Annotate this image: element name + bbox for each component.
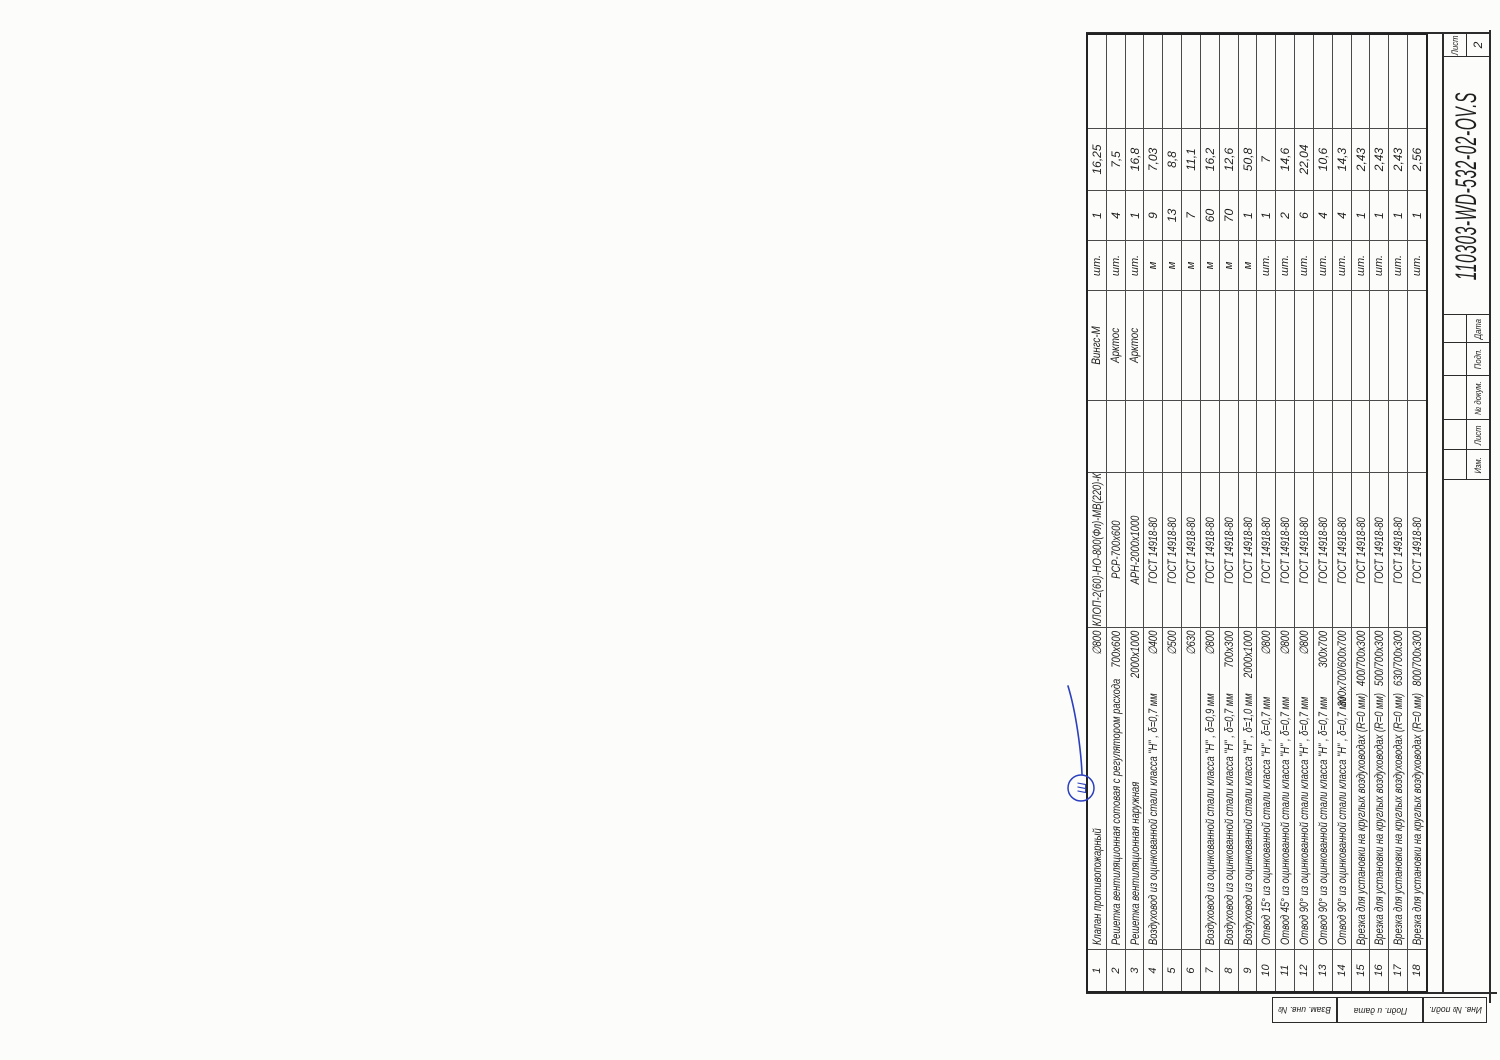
code-cell (1088, 400, 1106, 472)
manufacturer-cell: Вингс-М (1088, 290, 1106, 400)
note-cell (1314, 35, 1332, 128)
quantity: 1 (1372, 212, 1386, 219)
mass-cell: 2,43 (1370, 128, 1388, 190)
position-cell: 4 (1144, 949, 1162, 991)
quantity: 1 (1354, 212, 1368, 219)
quantity-cell: 6 (1295, 190, 1313, 240)
unit-cell: м (1163, 240, 1181, 290)
position-number: 17 (1392, 964, 1404, 976)
stamp-inv-podl: Инв. № подл. (1423, 997, 1487, 1023)
item-size: ∅800 (1297, 631, 1311, 655)
item-designation: ГОСТ 14918-80 (1410, 517, 1424, 583)
note-cell (1276, 35, 1294, 128)
stamp-podp-data: Подп. и дата (1337, 997, 1423, 1023)
quantity-cell: 1 (1257, 190, 1275, 240)
table-row: 6∅630ГОСТ 14918-80м711,1 (1182, 35, 1201, 991)
quantity-cell: 60 (1201, 190, 1219, 240)
item-name: Врезка для установки на круглых воздухов… (1391, 693, 1405, 945)
note-cell (1126, 35, 1144, 128)
quantity-cell: 1 (1389, 190, 1407, 240)
code-cell (1295, 400, 1313, 472)
spec-table: 1Клапан противопожарный∅800КЛОП-2(60)-НО… (1086, 33, 1428, 993)
mass: 22,04 (1297, 144, 1311, 174)
quantity-cell: 4 (1107, 190, 1125, 240)
unit: шт. (1110, 255, 1122, 276)
item-name: Воздуховод из оцинкованной стали класса … (1203, 693, 1217, 945)
code-cell (1144, 400, 1162, 472)
mass-cell: 2,43 (1389, 128, 1407, 190)
position-cell: 15 (1352, 949, 1370, 991)
item-designation: ГОСТ 14918-80 (1278, 517, 1292, 583)
position-cell: 14 (1333, 949, 1351, 991)
item-name-cell: Отвод 45° из оцинкованной стали класса "… (1276, 627, 1294, 949)
note-cell (1352, 35, 1370, 128)
quantity-cell: 1 (1239, 190, 1257, 240)
mass: 2,56 (1410, 148, 1424, 171)
item-name: Отвод 90° из оцинкованной стали класса "… (1335, 697, 1349, 945)
mass: 14,6 (1278, 148, 1292, 171)
designation-cell: ГОСТ 14918-80 (1276, 472, 1294, 627)
quantity: 1 (1259, 212, 1273, 219)
item-name-cell: Врезка для установки на круглых воздухов… (1389, 627, 1407, 949)
mass: 2,43 (1391, 148, 1405, 171)
unit-cell: шт. (1126, 240, 1144, 290)
table-row: 12Отвод 90° из оцинкованной стали класса… (1295, 35, 1314, 991)
manufacturer-cell (1389, 290, 1407, 400)
note-cell (1220, 35, 1238, 128)
item-name-cell: Врезка для установки на круглых воздухов… (1352, 627, 1370, 949)
code-cell (1201, 400, 1219, 472)
quantity-cell: 7 (1182, 190, 1200, 240)
mass: 12,6 (1222, 148, 1236, 171)
code-cell (1182, 400, 1200, 472)
item-name-cell: Отвод 15° из оцинкованной стали класса "… (1257, 627, 1275, 949)
position-number: 3 (1129, 967, 1141, 973)
position-cell: 12 (1295, 949, 1313, 991)
item-name: Решетка вентиляционная наружная (1128, 782, 1142, 945)
designation-cell: ГОСТ 14918-80 (1389, 472, 1407, 627)
unit: шт. (1336, 255, 1348, 276)
table-row: 2Решетка вентиляционная сотовая с регуля… (1107, 35, 1126, 991)
item-designation: АРН-2000х1000 (1128, 516, 1142, 585)
quantity: 9 (1146, 212, 1160, 219)
unit-cell: шт. (1352, 240, 1370, 290)
manufacturer-cell (1276, 290, 1294, 400)
manufacturer: Арктос (1110, 328, 1122, 363)
position-number: 1 (1091, 967, 1103, 973)
table-row: 5∅500ГОСТ 14918-80м138,8 (1163, 35, 1182, 991)
item-name: Воздуховод из оцинкованной стали класса … (1241, 693, 1255, 945)
table-row: 3Решетка вентиляционная наружная2000х100… (1126, 35, 1145, 991)
item-designation: ГОСТ 14918-80 (1146, 517, 1160, 583)
item-designation: РСР-700х600 (1109, 521, 1123, 579)
position-number: 15 (1355, 964, 1367, 976)
quantity-cell: 1 (1370, 190, 1388, 240)
manufacturer-cell (1352, 290, 1370, 400)
table-row: 16Врезка для установки на круглых воздух… (1370, 35, 1389, 991)
quantity: 4 (1109, 212, 1123, 219)
designation-cell: АРН-2000х1000 (1126, 472, 1144, 627)
unit: м (1147, 262, 1159, 270)
unit-cell: шт. (1276, 240, 1294, 290)
table-row: 18Врезка для установки на круглых воздух… (1408, 35, 1426, 991)
position-number: 6 (1185, 967, 1197, 973)
mass: 7 (1259, 156, 1273, 163)
designation-cell: ГОСТ 14918-80 (1333, 472, 1351, 627)
unit: шт. (1091, 255, 1103, 276)
position-cell: 7 (1201, 949, 1219, 991)
mass: 16,25 (1090, 144, 1104, 174)
specification-page: 1Клапан противопожарный∅800КЛОП-2(60)-НО… (0, 0, 1500, 1060)
mass: 16,2 (1203, 148, 1217, 171)
item-name-cell: Воздуховод из оцинкованной стали класса … (1201, 627, 1219, 949)
position-cell: 10 (1257, 949, 1275, 991)
unit-cell: м (1239, 240, 1257, 290)
code-cell (1126, 400, 1144, 472)
item-name-cell: ∅630 (1182, 627, 1200, 949)
position-number: 4 (1147, 967, 1159, 973)
manufacturer-cell (1220, 290, 1238, 400)
item-size: 500/700х300 (1372, 631, 1386, 687)
quantity: 1 (1090, 212, 1104, 219)
item-size: ∅400 (1146, 631, 1160, 655)
item-designation: ГОСТ 14918-80 (1241, 517, 1255, 583)
rev-label-izm: Изм. (1466, 450, 1490, 480)
mass-cell: 16,25 (1088, 128, 1106, 190)
manufacturer-cell (1201, 290, 1219, 400)
rev-label-list: Лист (1466, 420, 1490, 450)
item-name-cell: Отвод 90° из оцинкованной стали класса "… (1295, 627, 1313, 949)
item-name: Врезка для установки на круглых воздухов… (1354, 693, 1368, 945)
item-designation: ГОСТ 14918-80 (1372, 517, 1386, 583)
quantity-cell: 1 (1126, 190, 1144, 240)
quantity: 1 (1128, 212, 1142, 219)
quantity: 4 (1335, 212, 1349, 219)
note-cell (1295, 35, 1313, 128)
item-name-cell: Решетка вентиляционная наружная2000х1000 (1126, 627, 1144, 949)
designation-cell: ГОСТ 14918-80 (1352, 472, 1370, 627)
item-designation: ГОСТ 14918-80 (1391, 517, 1405, 583)
unit: м (1204, 262, 1216, 270)
quantity: 70 (1222, 209, 1236, 222)
mass: 10,6 (1316, 148, 1330, 171)
manufacturer-cell (1182, 290, 1200, 400)
mass-cell: 10,6 (1314, 128, 1332, 190)
rev-label-data: Дата (1466, 315, 1490, 343)
position-number: 12 (1298, 964, 1310, 976)
table-row: 9Воздуховод из оцинкованной стали класса… (1239, 35, 1258, 991)
manufacturer: Арктос (1129, 328, 1141, 363)
mass-cell: 22,04 (1295, 128, 1313, 190)
item-name: Решетка вентиляционная сотовая с регулят… (1109, 679, 1123, 945)
table-row: 10Отвод 15° из оцинкованной стали класса… (1257, 35, 1276, 991)
rev-label-podp: Подп. (1466, 343, 1490, 376)
position-cell: 18 (1408, 949, 1426, 991)
item-name-cell: Отвод 90° из оцинкованной стали класса "… (1333, 627, 1351, 949)
note-cell (1201, 35, 1219, 128)
item-size: ∅630 (1184, 631, 1198, 655)
unit-cell: м (1220, 240, 1238, 290)
svg-text:Ш: Ш (1075, 782, 1089, 794)
position-number: 9 (1242, 967, 1254, 973)
item-designation: ГОСТ 14918-80 (1316, 517, 1330, 583)
mass-cell: 14,3 (1333, 128, 1351, 190)
manufacturer-cell (1239, 290, 1257, 400)
sheet-label-cell: Лист (1443, 33, 1466, 57)
mass-cell: 2,56 (1408, 128, 1426, 190)
unit-cell: шт. (1370, 240, 1388, 290)
designation-cell: РСР-700х600 (1107, 472, 1125, 627)
quantity: 1 (1410, 212, 1424, 219)
unit-cell: м (1144, 240, 1162, 290)
position-number: 8 (1223, 967, 1235, 973)
position-number: 18 (1411, 964, 1423, 976)
code-cell (1107, 400, 1125, 472)
designation-cell: ГОСТ 14918-80 (1408, 472, 1426, 627)
mass: 7,5 (1109, 151, 1123, 168)
sheet-label: Лист (1450, 35, 1460, 55)
manufacturer-cell: Арктос (1126, 290, 1144, 400)
mass: 11,1 (1184, 148, 1198, 170)
item-name-cell: Решетка вентиляционная сотовая с регулят… (1107, 627, 1125, 949)
code-cell (1220, 400, 1238, 472)
manufacturer: Вингс-М (1091, 326, 1103, 364)
item-designation: ГОСТ 14918-80 (1335, 517, 1349, 583)
unit-cell: шт. (1295, 240, 1313, 290)
position-number: 7 (1204, 967, 1216, 973)
item-name: Врезка для установки на круглых воздухов… (1372, 693, 1386, 945)
position-number: 2 (1110, 967, 1122, 973)
table-row: 13Отвод 90° из оцинкованной стали класса… (1314, 35, 1333, 991)
code-cell (1314, 400, 1332, 472)
quantity-cell: 4 (1333, 190, 1351, 240)
handwritten-pen-mark: Ш (1060, 672, 1100, 812)
unit-cell: шт. (1333, 240, 1351, 290)
item-designation: КЛОП-2(60)-НО-800(Фл)-МВ(220)-К (1090, 473, 1104, 626)
item-size: 400/700х300 (1354, 631, 1368, 687)
manufacturer-cell (1370, 290, 1388, 400)
code-cell (1257, 400, 1275, 472)
position-number: 10 (1260, 964, 1272, 976)
quantity: 1 (1391, 212, 1405, 219)
note-cell (1408, 35, 1426, 128)
table-row: 7Воздуховод из оцинкованной стали класса… (1201, 35, 1220, 991)
quantity-cell: 13 (1163, 190, 1181, 240)
item-name: Отвод 90° из оцинкованной стали класса "… (1316, 697, 1330, 945)
unit: шт. (1298, 255, 1310, 276)
mass-cell: 7 (1257, 128, 1275, 190)
unit: шт. (1373, 255, 1385, 276)
note-cell (1088, 35, 1106, 128)
mass: 16,8 (1128, 148, 1142, 171)
item-size: 300х700 (1316, 631, 1330, 668)
position-cell: 5 (1163, 949, 1181, 991)
unit: м (1185, 262, 1197, 270)
manufacturer-cell (1314, 290, 1332, 400)
mass: 50,8 (1241, 148, 1255, 171)
item-name: Отвод 90° из оцинкованной стали класса "… (1297, 697, 1311, 945)
note-cell (1370, 35, 1388, 128)
unit: шт. (1279, 255, 1291, 276)
mass-cell: 2,43 (1352, 128, 1370, 190)
mass-cell: 16,8 (1126, 128, 1144, 190)
code-cell (1370, 400, 1388, 472)
code-cell (1163, 400, 1181, 472)
stamp-vzam-inv: Взам. инв. № (1272, 997, 1337, 1023)
manufacturer-cell (1295, 290, 1313, 400)
designation-cell: ГОСТ 14918-80 (1220, 472, 1238, 627)
position-cell: 2 (1107, 949, 1125, 991)
position-cell: 3 (1126, 949, 1144, 991)
position-cell: 11 (1276, 949, 1294, 991)
unit: шт. (1129, 255, 1141, 276)
quantity: 2 (1278, 212, 1292, 219)
note-cell (1107, 35, 1125, 128)
unit-cell: шт. (1314, 240, 1332, 290)
quantity: 60 (1203, 209, 1217, 222)
designation-cell: КЛОП-2(60)-НО-800(Фл)-МВ(220)-К (1088, 472, 1106, 627)
designation-cell: ГОСТ 14918-80 (1201, 472, 1219, 627)
rev-label-ndocum: № докум. (1466, 376, 1490, 420)
item-name: Воздуховод из оцинкованной стали класса … (1222, 693, 1236, 945)
mass: 8,8 (1165, 151, 1179, 168)
sheet-number-cell: 2 (1466, 33, 1490, 57)
item-name: Клапан противопожарный (1090, 828, 1104, 945)
note-cell (1333, 35, 1351, 128)
item-size: ∅800 (1259, 631, 1273, 655)
quantity-cell: 1 (1408, 190, 1426, 240)
mass-cell: 8,8 (1163, 128, 1181, 190)
item-size: 800/700х300 (1410, 631, 1424, 687)
unit-cell: шт. (1107, 240, 1125, 290)
table-row: 4Воздуховод из оцинкованной стали класса… (1144, 35, 1163, 991)
unit: м (1242, 262, 1254, 270)
quantity-cell: 4 (1314, 190, 1332, 240)
designation-cell: ГОСТ 14918-80 (1144, 472, 1162, 627)
manufacturer-cell (1257, 290, 1275, 400)
mass-cell: 14,6 (1276, 128, 1294, 190)
scanned-drawing-sheet: 1Клапан противопожарный∅800КЛОП-2(60)-НО… (0, 0, 1500, 1060)
item-size: 300х700/600х700 (1335, 631, 1349, 707)
item-name: Врезка для установки на круглых воздухов… (1410, 693, 1424, 945)
mass: 2,43 (1372, 148, 1386, 171)
note-cell (1182, 35, 1200, 128)
mass-cell: 16,2 (1201, 128, 1219, 190)
table-row: 8Воздуховод из оцинкованной стали класса… (1220, 35, 1239, 991)
item-designation: ГОСТ 14918-80 (1203, 517, 1217, 583)
designation-cell: ГОСТ 14918-80 (1182, 472, 1200, 627)
designation-cell: ГОСТ 14918-80 (1257, 472, 1275, 627)
unit-cell: м (1201, 240, 1219, 290)
item-name-cell: Врезка для установки на круглых воздухов… (1408, 627, 1426, 949)
unit-cell: шт. (1389, 240, 1407, 290)
table-row: 15Врезка для установки на круглых воздух… (1352, 35, 1371, 991)
item-designation: ГОСТ 14918-80 (1297, 517, 1311, 583)
quantity: 7 (1184, 212, 1198, 219)
item-designation: ГОСТ 14918-80 (1165, 517, 1179, 583)
quantity-cell: 9 (1144, 190, 1162, 240)
designation-cell: ГОСТ 14918-80 (1239, 472, 1257, 627)
note-cell (1257, 35, 1275, 128)
item-size: ∅800 (1090, 631, 1104, 655)
item-designation: ГОСТ 14918-80 (1222, 517, 1236, 583)
mass: 7,03 (1146, 148, 1160, 171)
unit: м (1166, 262, 1178, 270)
position-cell: 13 (1314, 949, 1332, 991)
code-cell (1408, 400, 1426, 472)
manufacturer-cell (1144, 290, 1162, 400)
mass: 14,3 (1335, 148, 1349, 171)
note-cell (1144, 35, 1162, 128)
position-number: 11 (1279, 965, 1291, 976)
item-size: ∅800 (1203, 631, 1217, 655)
item-size: 700х600 (1109, 631, 1123, 668)
note-cell (1239, 35, 1257, 128)
quantity-cell: 70 (1220, 190, 1238, 240)
position-cell: 1 (1088, 949, 1106, 991)
table-row: 14Отвод 90° из оцинкованной стали класса… (1333, 35, 1352, 991)
code-cell (1239, 400, 1257, 472)
item-designation: ГОСТ 14918-80 (1184, 517, 1198, 583)
mass: 2,43 (1354, 148, 1368, 171)
mass-cell: 11,1 (1182, 128, 1200, 190)
table-row: 11Отвод 45° из оцинкованной стали класса… (1276, 35, 1295, 991)
document-number: 110303-WD-532-02-OV.S (1450, 92, 1484, 280)
unit: шт. (1260, 255, 1272, 276)
item-size: 700х300 (1222, 631, 1236, 668)
quantity: 6 (1297, 212, 1311, 219)
quantity-cell: 1 (1352, 190, 1370, 240)
item-size: 2000х1000 (1128, 631, 1142, 679)
item-size: 630/700х300 (1391, 631, 1405, 687)
item-name: Отвод 45° из оцинкованной стали класса "… (1278, 697, 1292, 945)
document-number-cell: 110303-WD-532-02-OV.S (1443, 57, 1490, 315)
note-cell (1389, 35, 1407, 128)
unit: шт. (1355, 255, 1367, 276)
quantity: 1 (1241, 212, 1255, 219)
item-name-cell: Воздуховод из оцинкованной стали класса … (1220, 627, 1238, 949)
unit-cell: шт. (1408, 240, 1426, 290)
quantity-cell: 1 (1088, 190, 1106, 240)
quantity-cell: 2 (1276, 190, 1294, 240)
unit-cell: шт. (1088, 240, 1106, 290)
designation-cell: ГОСТ 14918-80 (1370, 472, 1388, 627)
manufacturer-cell (1163, 290, 1181, 400)
unit-cell: шт. (1257, 240, 1275, 290)
unit: шт. (1392, 255, 1404, 276)
unit: м (1223, 262, 1235, 270)
code-cell (1352, 400, 1370, 472)
position-cell: 9 (1239, 949, 1257, 991)
position-cell: 6 (1182, 949, 1200, 991)
item-name-cell: Воздуховод из оцинкованной стали класса … (1239, 627, 1257, 949)
position-cell: 16 (1370, 949, 1388, 991)
mass-cell: 50,8 (1239, 128, 1257, 190)
code-cell (1276, 400, 1294, 472)
position-number: 5 (1166, 967, 1178, 973)
position-number: 16 (1373, 964, 1385, 976)
item-name-cell: Отвод 90° из оцинкованной стали класса "… (1314, 627, 1332, 949)
item-name: Отвод 15° из оцинкованной стали класса "… (1259, 697, 1273, 945)
sheet-number: 2 (1471, 42, 1485, 49)
item-name-cell: Воздуховод из оцинкованной стали класса … (1144, 627, 1162, 949)
item-designation: ГОСТ 14918-80 (1259, 517, 1273, 583)
item-name-cell: Врезка для установки на круглых воздухов… (1370, 627, 1388, 949)
unit: шт. (1411, 255, 1423, 276)
unit: шт. (1317, 255, 1329, 276)
unit-cell: м (1182, 240, 1200, 290)
code-cell (1333, 400, 1351, 472)
